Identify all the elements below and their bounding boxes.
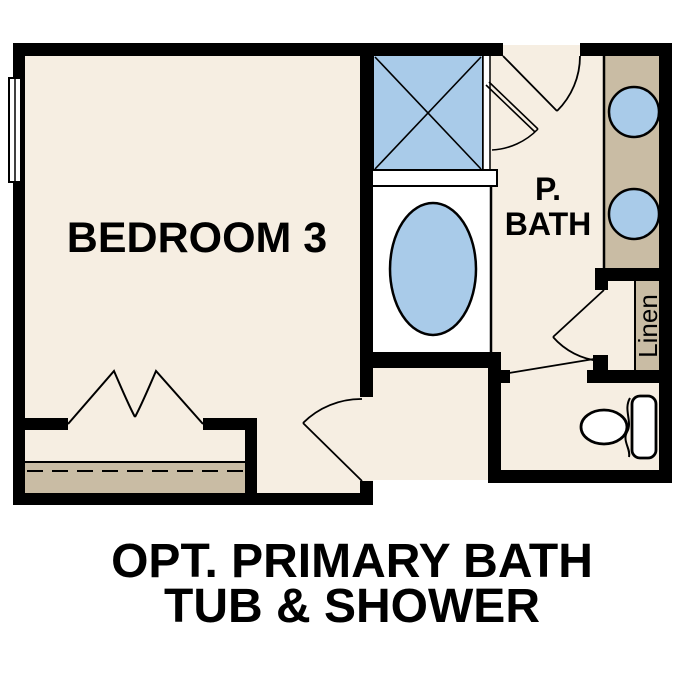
closet-shelf [25, 462, 245, 493]
caption-line2: TUB & SHOWER [164, 580, 540, 633]
wall-top-right [580, 43, 672, 56]
wall-wc-door-stub [501, 370, 510, 383]
sink-bottom [609, 189, 659, 239]
shower-glass-panel [483, 55, 490, 172]
bedroom-floor [25, 55, 360, 493]
shower [369, 55, 497, 186]
wall-tub-room-bottom [360, 352, 497, 368]
bedroom-label: BEDROOM 3 [67, 214, 327, 262]
wall-top-left [13, 43, 503, 56]
wall-closet-right [245, 418, 257, 505]
vanity [603, 55, 659, 268]
wall-linen-top-stub [595, 268, 608, 290]
bath-label-line1: P. [535, 171, 561, 207]
wall-wc-left [488, 352, 501, 483]
bath-label-line2: BATH [505, 206, 592, 242]
wall-bedroom-bath-divider [360, 43, 373, 397]
shower-threshold [369, 170, 497, 186]
wall-closet-front-left [25, 418, 68, 430]
toilet-tank [632, 396, 656, 458]
toilet-bowl [581, 410, 627, 444]
window [9, 78, 21, 182]
linen-label: Linen [633, 294, 663, 358]
bathtub [390, 203, 476, 335]
floorplan-drawing: BEDROOM 3 P. BATH Linen OPT. PRIMARY BAT… [0, 0, 687, 687]
bath-entry-doorway-floor [503, 45, 580, 56]
wall-linen-bottom-stub [593, 355, 608, 372]
wall-bottom-bedroom [13, 493, 373, 505]
floorplan-page: BEDROOM 3 P. BATH Linen OPT. PRIMARY BAT… [0, 0, 687, 687]
bedroom-doorway-floor [360, 397, 373, 481]
wall-wc-bottom [488, 470, 672, 483]
sink-top [609, 87, 659, 137]
wall-right [659, 43, 672, 483]
wall-bedroom-door-stub [360, 481, 373, 505]
floor-areas [25, 45, 659, 493]
